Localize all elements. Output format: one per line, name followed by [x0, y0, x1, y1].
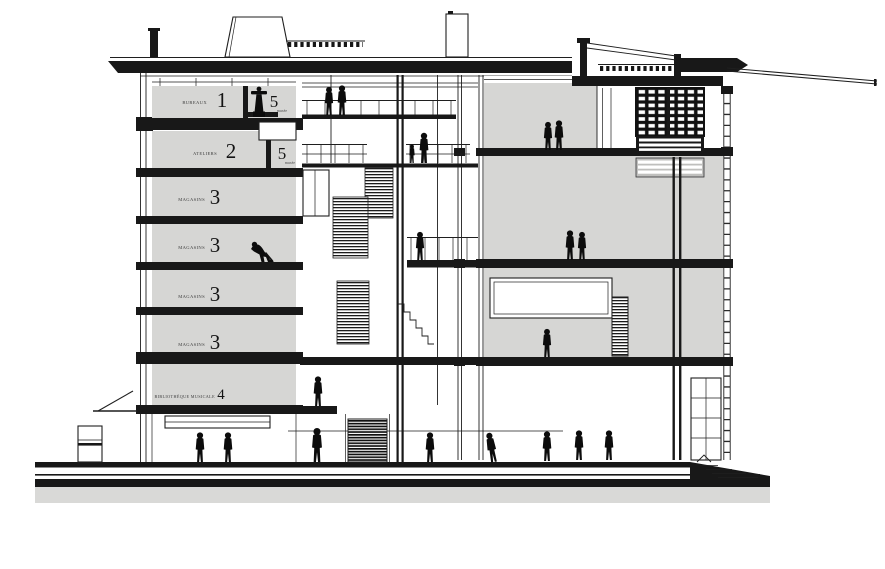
- person-silhouette: [416, 232, 424, 260]
- room-magasins-4: [152, 315, 296, 352]
- column: [679, 157, 681, 460]
- section-canvas: [0, 0, 885, 569]
- person-silhouette: [314, 376, 323, 406]
- person-silhouette: [312, 428, 322, 462]
- ladder-stair: [612, 297, 628, 356]
- stair-flight: [365, 168, 393, 218]
- grid-panel: [636, 88, 704, 152]
- louver-panel: [636, 158, 704, 177]
- chimney: [150, 30, 158, 57]
- room-upper-right: [484, 83, 597, 148]
- room-magasins-1: [152, 177, 296, 216]
- architectural-section-drawing: 1 BUREAUX 5 musée 2 ATELIERS 5 musée 3 M…: [0, 0, 885, 569]
- elevator-overrun: [446, 14, 468, 57]
- ground: [35, 462, 770, 503]
- inset-panel: [490, 278, 612, 318]
- side-canopy: [727, 68, 877, 84]
- stair-flight: [337, 281, 369, 344]
- person-silhouette: [543, 431, 552, 461]
- person-silhouette: [575, 430, 584, 460]
- partition-wall: [266, 140, 271, 168]
- column: [673, 157, 675, 460]
- landing: [302, 144, 478, 168]
- roof-beam: [681, 58, 748, 72]
- person-silhouette: [605, 430, 614, 460]
- ground-glazing: [691, 378, 721, 462]
- mezzanine-box: [259, 122, 296, 140]
- person-silhouette: [338, 85, 347, 115]
- stair-flight: [333, 197, 368, 258]
- room-magasins-2: [152, 224, 296, 262]
- person-silhouette: [224, 432, 233, 462]
- roof-truss: [577, 38, 681, 77]
- shaft: [303, 170, 329, 216]
- room-magasins-3: [152, 270, 296, 307]
- roof: [108, 11, 877, 86]
- person-silhouette: [485, 432, 499, 463]
- person-silhouette: [196, 432, 205, 462]
- person-silhouette: [426, 432, 435, 462]
- room-bibliotheque: [152, 364, 296, 405]
- louver-door: [348, 419, 387, 462]
- right-block: [476, 75, 733, 462]
- column: [402, 75, 404, 462]
- column: [397, 75, 399, 462]
- person-silhouette: [325, 87, 333, 115]
- left-block: [137, 78, 303, 462]
